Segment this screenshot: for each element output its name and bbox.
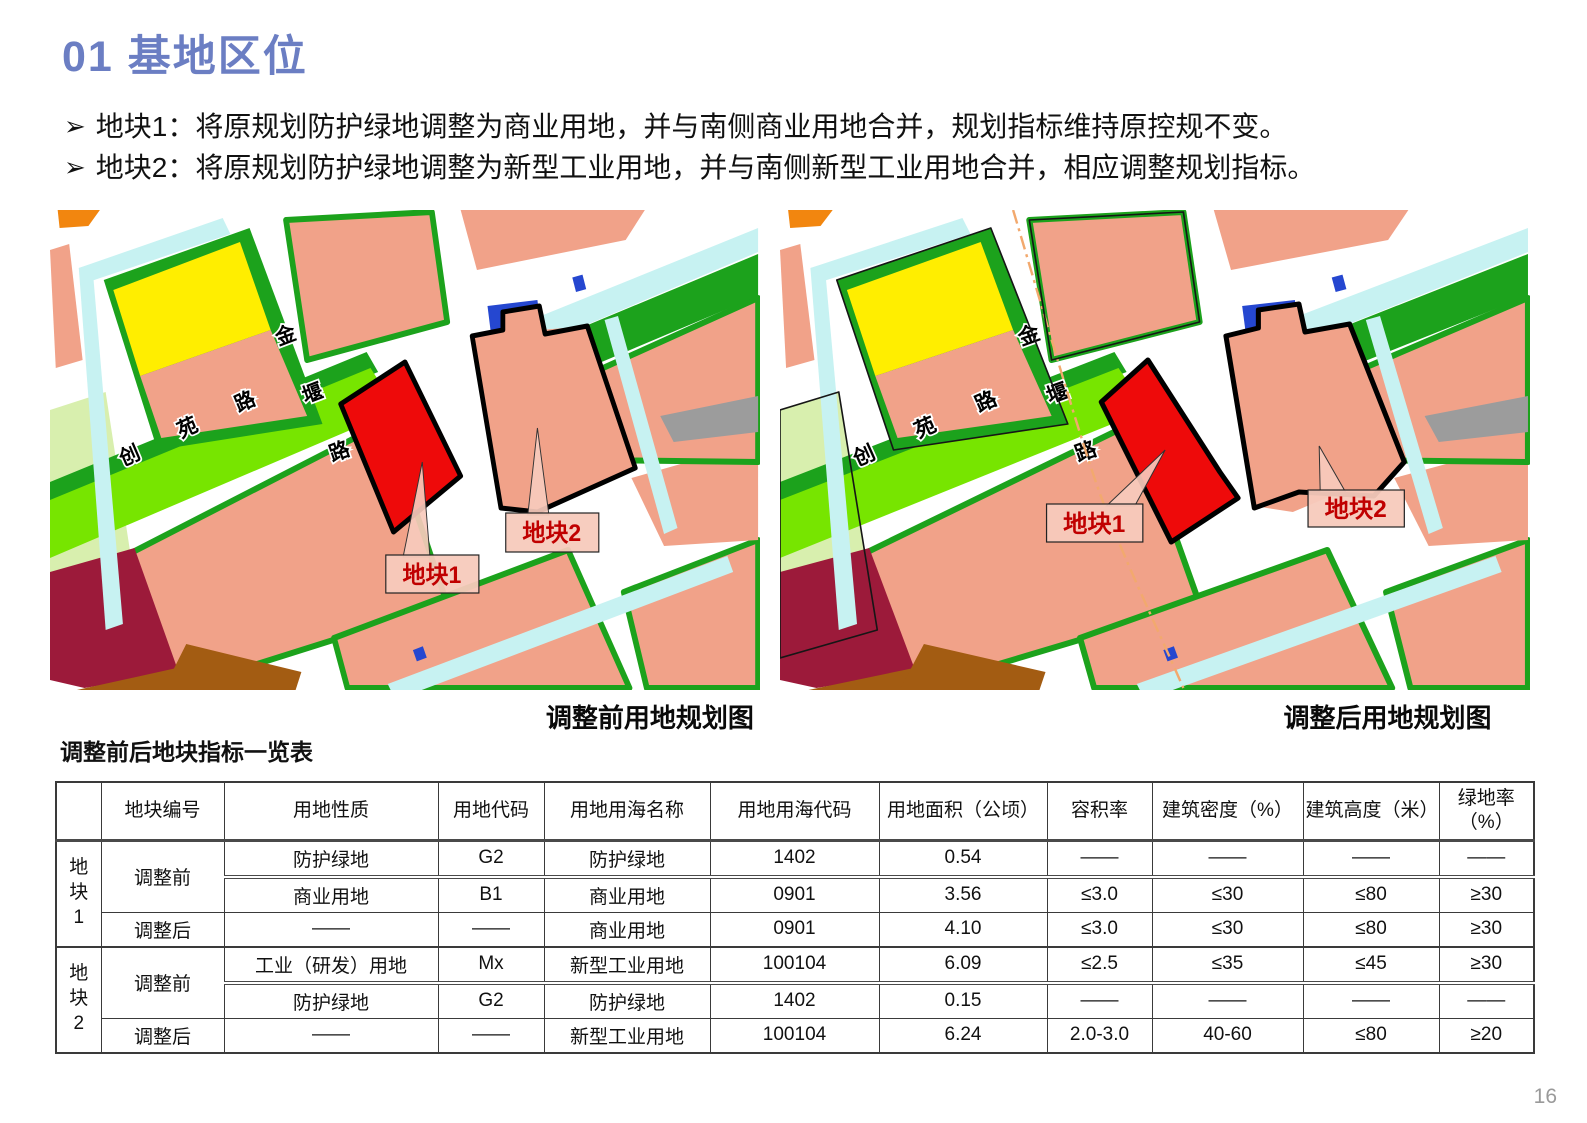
plot2-label: 地块2 xyxy=(1325,496,1387,523)
page-title: 01 基地区位 xyxy=(62,22,308,84)
cell: 6.24 xyxy=(879,1018,1047,1053)
header-plot-no: 地块编号 xyxy=(101,782,224,840)
maps-row: 金 堰 路 创 苑 路 地块1 地块2 xyxy=(50,210,1530,690)
cell: ≥30 xyxy=(1439,877,1534,913)
bullet-text-1: 地块1：将原规划防护绿地调整为商业用地，并与南侧商业用地合并，规划指标维持原控规… xyxy=(96,106,1288,147)
cell: —— xyxy=(1152,983,1303,1019)
cell: —— xyxy=(1303,840,1439,877)
bullet-text-2: 地块2：将原规划防护绿地调整为新型工业用地，并与南侧新型工业用地合并，相应调整规… xyxy=(96,147,1316,188)
map-before-caption: 调整前用地规划图 xyxy=(546,698,754,735)
cell: —— xyxy=(1047,983,1152,1019)
cell: ≤2.5 xyxy=(1047,947,1152,983)
cell: ≤30 xyxy=(1152,912,1303,947)
cell: ≤3.0 xyxy=(1047,877,1152,913)
map-before: 金 堰 路 创 苑 路 地块1 地块2 xyxy=(50,210,760,690)
slide-page: 01 基地区位 ➢ 地块1：将原规划防护绿地调整为商业用地，并与南侧商业用地合并… xyxy=(0,0,1587,1123)
cell: 0.54 xyxy=(879,840,1047,877)
header-sea-code: 用地用海代码 xyxy=(710,782,879,840)
cell: 商业用地 xyxy=(544,877,710,913)
map-before-figure: 金 堰 路 创 苑 路 地块1 地块2 xyxy=(50,210,760,690)
table-title: 调整前后地块指标一览表 xyxy=(60,733,313,767)
cell: —— xyxy=(1047,840,1152,877)
cell: —— xyxy=(438,912,544,947)
cell: 6.09 xyxy=(879,947,1047,983)
map-after: 地块1 地块2 xyxy=(780,210,1530,690)
cell: —— xyxy=(1439,983,1534,1019)
cell: 100104 xyxy=(710,1018,879,1053)
cell: B1 xyxy=(438,877,544,913)
header-land-code: 用地代码 xyxy=(438,782,544,840)
cell: ≤80 xyxy=(1303,912,1439,947)
cell: 0.15 xyxy=(879,983,1047,1019)
plot2-rowlabel: 地块2 xyxy=(56,947,101,1053)
bullet-arrow-icon: ➢ xyxy=(64,147,86,188)
cell: 商业用地 xyxy=(224,877,438,913)
plot1-label: 地块1 xyxy=(1063,511,1125,538)
header-green-rate: 绿地率（%） xyxy=(1439,782,1534,840)
cell: —— xyxy=(438,1018,544,1053)
cell: Mx xyxy=(438,947,544,983)
header-blank xyxy=(56,782,101,840)
table-row: 调整后 —— —— 新型工业用地 100104 6.24 2.0-3.0 40-… xyxy=(56,1018,1534,1053)
table-header-row: 地块编号 用地性质 用地代码 用地用海名称 用地用海代码 用地面积（公顷） 容积… xyxy=(56,782,1534,840)
cell: 3.56 xyxy=(879,877,1047,913)
table-row: 地块2 调整前 工业（研发）用地 Mx 新型工业用地 100104 6.09 ≤… xyxy=(56,947,1534,983)
cell: 防护绿地 xyxy=(224,983,438,1019)
cell: G2 xyxy=(438,840,544,877)
plot1-post-label: 调整后 xyxy=(101,912,224,947)
cell: ≤80 xyxy=(1303,1018,1439,1053)
header-land-use: 用地性质 xyxy=(224,782,438,840)
header-far: 容积率 xyxy=(1047,782,1152,840)
cell: 防护绿地 xyxy=(224,840,438,877)
cell: ≤3.0 xyxy=(1047,912,1152,947)
bullet-list: ➢ 地块1：将原规划防护绿地调整为商业用地，并与南侧商业用地合并，规划指标维持原… xyxy=(64,106,1534,188)
cell: 商业用地 xyxy=(544,912,710,947)
plot1-rowlabel: 地块1 xyxy=(56,840,101,947)
cell: 4.10 xyxy=(879,912,1047,947)
table-row: 防护绿地 G2 防护绿地 1402 0.15 —— —— —— —— xyxy=(56,983,1534,1019)
bullet-arrow-icon: ➢ xyxy=(64,106,86,147)
header-density: 建筑密度（%） xyxy=(1152,782,1303,840)
cell: 40-60 xyxy=(1152,1018,1303,1053)
map-after-figure: 地块1 地块2 调整后用地规划图 xyxy=(780,210,1530,690)
table-row: 地块1 调整前 防护绿地 G2 防护绿地 1402 0.54 —— —— —— … xyxy=(56,840,1534,877)
cell: 防护绿地 xyxy=(544,840,710,877)
cell: ≤80 xyxy=(1303,877,1439,913)
map-after-caption: 调整后用地规划图 xyxy=(1283,698,1491,735)
cell: —— xyxy=(224,1018,438,1053)
cell: 新型工业用地 xyxy=(544,947,710,983)
cell: ≥20 xyxy=(1439,1018,1534,1053)
cell: 1402 xyxy=(710,840,879,877)
cell: ≤30 xyxy=(1152,877,1303,913)
cell: 0901 xyxy=(710,912,879,947)
cell: —— xyxy=(1152,840,1303,877)
plot2-label: 地块2 xyxy=(522,520,581,547)
indicator-table: 地块编号 用地性质 用地代码 用地用海名称 用地用海代码 用地面积（公顷） 容积… xyxy=(55,781,1535,1054)
cell: 1402 xyxy=(710,983,879,1019)
cell: ≤35 xyxy=(1152,947,1303,983)
plot1-pre-label: 调整前 xyxy=(101,840,224,912)
cell: 0901 xyxy=(710,877,879,913)
header-area: 用地面积（公顷） xyxy=(879,782,1047,840)
bullet-item-2: ➢ 地块2：将原规划防护绿地调整为新型工业用地，并与南侧新型工业用地合并，相应调… xyxy=(64,147,1534,188)
plot2-post-label: 调整后 xyxy=(101,1018,224,1053)
cell: —— xyxy=(1303,983,1439,1019)
bullet-item-1: ➢ 地块1：将原规划防护绿地调整为商业用地，并与南侧商业用地合并，规划指标维持原… xyxy=(64,106,1534,147)
cell: 2.0-3.0 xyxy=(1047,1018,1152,1053)
cell: 防护绿地 xyxy=(544,983,710,1019)
cell: G2 xyxy=(438,983,544,1019)
cell: ≥30 xyxy=(1439,947,1534,983)
cell: 新型工业用地 xyxy=(544,1018,710,1053)
table-row: 调整后 —— —— 商业用地 0901 4.10 ≤3.0 ≤30 ≤80 ≥3… xyxy=(56,912,1534,947)
plot1-label: 地块1 xyxy=(402,562,461,589)
page-number: 16 xyxy=(1534,1085,1557,1109)
plot2-pre-label: 调整前 xyxy=(101,947,224,1019)
header-height: 建筑高度（米） xyxy=(1303,782,1439,840)
cell: —— xyxy=(1439,840,1534,877)
cell: ≤45 xyxy=(1303,947,1439,983)
header-sea-name: 用地用海名称 xyxy=(544,782,710,840)
cell: 100104 xyxy=(710,947,879,983)
cell: —— xyxy=(224,912,438,947)
cell: ≥30 xyxy=(1439,912,1534,947)
table-row: 商业用地 B1 商业用地 0901 3.56 ≤3.0 ≤30 ≤80 ≥30 xyxy=(56,877,1534,913)
cell: 工业（研发）用地 xyxy=(224,947,438,983)
